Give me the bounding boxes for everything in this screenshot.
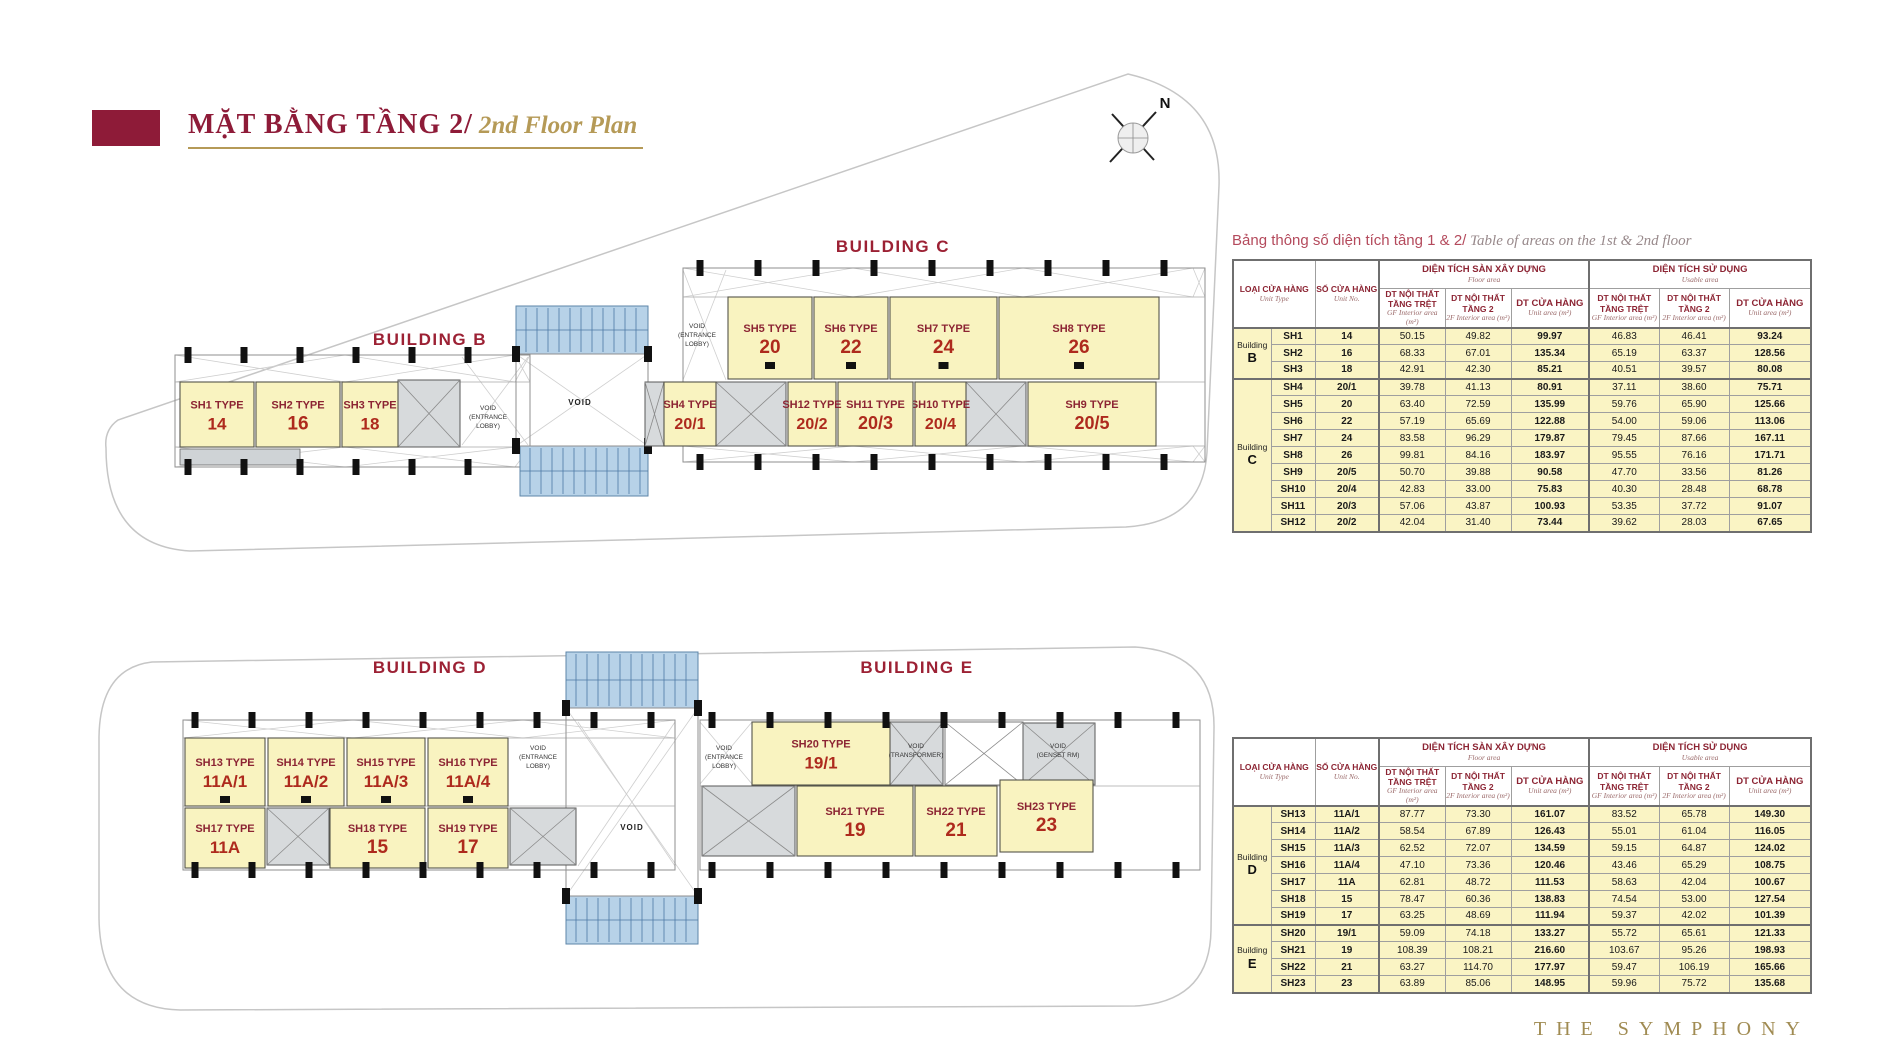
area-table-title-vi: Bảng thông số diện tích tầng 1 & 2/ <box>1232 232 1466 249</box>
column-tick <box>1103 454 1110 470</box>
unit-type-label: SH5 TYPE <box>743 323 796 335</box>
door-mark <box>846 362 856 369</box>
column-header: DT NỘI THẤT TẦNG 22F Interior area (m²) <box>1445 289 1511 328</box>
unit-area-cell: 75.83 <box>1511 481 1589 498</box>
unit-no-cell: 20/3 <box>1315 498 1379 515</box>
area-table-buildings-b-c: LOẠI CỬA HÀNGUnit TypeSỐ CỬA HÀNGUnit No… <box>1232 259 1812 533</box>
unit-usable-area-cell: 128.56 <box>1729 345 1811 362</box>
page-title-en: 2nd Floor Plan <box>479 112 637 139</box>
column-header: SỐ CỬA HÀNGUnit No. <box>1315 260 1379 328</box>
void-entrance-lobby-label: VOID <box>480 405 496 412</box>
unit-type-label: SH12 TYPE <box>782 399 841 411</box>
f2-usable-cell: 76.16 <box>1659 447 1729 464</box>
table-row: SH232363.8985.06148.9559.9675.72135.68 <box>1233 976 1811 993</box>
gf-usable-cell: 43.46 <box>1589 857 1659 874</box>
gf-interior-cell: 58.54 <box>1379 823 1445 840</box>
column-tick <box>987 454 994 470</box>
gf-usable-cell: 79.45 <box>1589 430 1659 447</box>
column-tick <box>825 862 832 878</box>
unit-type-label: SH7 TYPE <box>917 323 970 335</box>
column-tick <box>534 862 541 878</box>
column-tick <box>420 712 427 728</box>
floor-plan-page: SH1 TYPE14SH2 TYPE16SH3 TYPE18SH4 TYPE20… <box>0 0 1894 1063</box>
unit-no-cell: 20/5 <box>1315 464 1379 481</box>
unit-area-cell: 183.97 <box>1511 447 1589 464</box>
void-entrance-lobby-label: LOBBY) <box>526 763 550 770</box>
f2-interior-cell: 48.69 <box>1445 908 1511 925</box>
f2-interior-cell: 72.07 <box>1445 840 1511 857</box>
column-post <box>644 346 652 362</box>
unit-area-cell: 148.95 <box>1511 976 1589 993</box>
unit-no-label: 21 <box>945 820 967 841</box>
column-tick <box>1045 260 1052 276</box>
unit-area-cell: 122.88 <box>1511 413 1589 430</box>
unit-area-cell: 133.27 <box>1511 925 1589 942</box>
void-entrance-lobby-label: VOID <box>689 323 705 330</box>
column-tick <box>534 712 541 728</box>
column-header: DT NỘI THẤT TẦNG TRỆTGF Interior area (m… <box>1589 767 1659 806</box>
unit-no-cell: 21 <box>1315 959 1379 976</box>
building-group-cell: BuildingC <box>1233 379 1271 532</box>
unit-no-cell: 24 <box>1315 430 1379 447</box>
unit-type-label: SH21 TYPE <box>825 806 884 818</box>
column-tick <box>1161 260 1168 276</box>
f2-interior-cell: 85.06 <box>1445 976 1511 993</box>
column-header: DT NỘI THẤT TẦNG 22F Interior area (m²) <box>1659 289 1729 328</box>
table-row: SH82699.8184.16183.9795.5576.16171.71 <box>1233 447 1811 464</box>
gf-usable-cell: 40.30 <box>1589 481 1659 498</box>
unit-usable-area-cell: 125.66 <box>1729 396 1811 413</box>
unit-area-cell: 135.34 <box>1511 345 1589 362</box>
unit-no-cell: 11A/2 <box>1315 823 1379 840</box>
unit-usable-area-cell: 80.08 <box>1729 362 1811 379</box>
f2-usable-cell: 87.66 <box>1659 430 1729 447</box>
unit-no-cell: 20/4 <box>1315 481 1379 498</box>
door-mark <box>381 796 391 803</box>
building-group-cell: BuildingB <box>1233 328 1271 379</box>
column-tick <box>249 712 256 728</box>
unit-id-cell: SH15 <box>1271 840 1315 857</box>
unit-type-label: SH19 TYPE <box>438 823 497 835</box>
gf-usable-cell: 95.55 <box>1589 447 1659 464</box>
column-tick <box>353 459 360 475</box>
unit-no-label: 11A <box>210 838 240 857</box>
column-tick <box>999 862 1006 878</box>
column-tick <box>648 862 655 878</box>
unit-id-cell: SH11 <box>1271 498 1315 515</box>
table-row: SH181578.4760.36138.8374.5453.00127.54 <box>1233 891 1811 908</box>
column-tick <box>192 712 199 728</box>
void-entrance-lobby-label: (ENTRANCE <box>705 754 744 761</box>
column-post <box>512 438 520 454</box>
unit-no-cell: 23 <box>1315 976 1379 993</box>
gf-interior-cell: 63.89 <box>1379 976 1445 993</box>
column-post <box>562 888 570 904</box>
f2-usable-cell: 42.02 <box>1659 908 1729 925</box>
building-label-C: BUILDING C <box>836 237 950 256</box>
void-entrance-lobby-label: (ENTRANCE <box>469 414 508 421</box>
table-row: SH1711A62.8148.72111.5358.6342.04100.67 <box>1233 874 1811 891</box>
gf-usable-cell: 103.67 <box>1589 942 1659 959</box>
gf-usable-cell: 47.70 <box>1589 464 1659 481</box>
column-header: DIỆN TÍCH SỬ DỤNGUsable area <box>1589 738 1811 767</box>
unit-type-label: SH18 TYPE <box>348 823 407 835</box>
door-mark <box>1074 362 1084 369</box>
unit-usable-area-cell: 113.06 <box>1729 413 1811 430</box>
column-tick <box>1045 454 1052 470</box>
column-post <box>562 700 570 716</box>
unit-area-cell: 90.58 <box>1511 464 1589 481</box>
f2-interior-cell: 42.30 <box>1445 362 1511 379</box>
unit-no-label: 20/3 <box>858 413 893 433</box>
unit-type-label: SH15 TYPE <box>356 757 415 769</box>
unit-no-cell: 19/1 <box>1315 925 1379 942</box>
unit-room-SH12 <box>788 382 836 446</box>
column-header: DIỆN TÍCH SÀN XÂY DỰNGFloor area <box>1379 738 1589 767</box>
column-tick <box>883 862 890 878</box>
column-header: DT NỘI THẤT TẦNG 22F Interior area (m²) <box>1659 767 1729 806</box>
page-title-vi: MẶT BẰNG TẦNG 2/ <box>188 109 473 140</box>
unit-no-label: 22 <box>840 337 861 358</box>
f2-interior-cell: 43.87 <box>1445 498 1511 515</box>
unit-area-cell: 138.83 <box>1511 891 1589 908</box>
unit-usable-area-cell: 165.66 <box>1729 959 1811 976</box>
door-mark <box>765 362 775 369</box>
f2-usable-cell: 28.03 <box>1659 515 1729 532</box>
unit-type-label: SH9 TYPE <box>1065 399 1118 411</box>
f2-interior-cell: 73.30 <box>1445 806 1511 823</box>
column-header: LOẠI CỬA HÀNGUnit Type <box>1233 260 1315 328</box>
gf-interior-cell: 78.47 <box>1379 891 1445 908</box>
column-tick <box>813 454 820 470</box>
void-label: VOID <box>568 398 592 407</box>
gf-usable-cell: 46.83 <box>1589 328 1659 345</box>
column-tick <box>871 260 878 276</box>
unit-type-label: SH4 TYPE <box>663 399 716 411</box>
unit-no-label: 20/5 <box>1074 413 1109 433</box>
unit-type-label: SH6 TYPE <box>824 323 877 335</box>
column-tick <box>697 260 704 276</box>
unit-no-label: 19 <box>844 820 865 841</box>
f2-usable-cell: 39.57 <box>1659 362 1729 379</box>
gf-usable-cell: 59.37 <box>1589 908 1659 925</box>
gf-interior-cell: 62.52 <box>1379 840 1445 857</box>
unit-usable-area-cell: 75.71 <box>1729 379 1811 396</box>
column-tick <box>465 459 472 475</box>
building-label-B: BUILDING B <box>373 330 487 349</box>
f2-interior-cell: 74.18 <box>1445 925 1511 942</box>
brand-square <box>92 110 160 146</box>
unit-id-cell: SH14 <box>1271 823 1315 840</box>
column-tick <box>709 862 716 878</box>
f2-usable-cell: 75.72 <box>1659 976 1729 993</box>
unit-no-cell: 11A/4 <box>1315 857 1379 874</box>
f2-interior-cell: 39.88 <box>1445 464 1511 481</box>
f2-usable-cell: 64.87 <box>1659 840 1729 857</box>
column-tick <box>755 260 762 276</box>
unit-usable-area-cell: 121.33 <box>1729 925 1811 942</box>
unit-id-cell: SH3 <box>1271 362 1315 379</box>
unit-no-cell: 19 <box>1315 942 1379 959</box>
column-tick <box>297 459 304 475</box>
f2-usable-cell: 53.00 <box>1659 891 1729 908</box>
gf-usable-cell: 55.01 <box>1589 823 1659 840</box>
gf-interior-cell: 42.83 <box>1379 481 1445 498</box>
unit-type-label: SH16 TYPE <box>438 757 497 769</box>
unit-type-label: SH10 TYPE <box>911 399 970 411</box>
f2-usable-cell: 59.06 <box>1659 413 1729 430</box>
column-tick <box>941 712 948 728</box>
column-tick <box>306 712 313 728</box>
column-tick <box>465 347 472 363</box>
project-brand-logo: THE SYMPHONY <box>1534 1018 1810 1041</box>
unit-no-cell: 26 <box>1315 447 1379 464</box>
f2-interior-cell: 41.13 <box>1445 379 1511 396</box>
column-header: LOẠI CỬA HÀNGUnit Type <box>1233 738 1315 806</box>
unit-no-cell: 16 <box>1315 345 1379 362</box>
unit-no-label: 20/1 <box>674 416 705 433</box>
gf-interior-cell: 42.91 <box>1379 362 1445 379</box>
area-table: LOẠI CỬA HÀNGUnit TypeSỐ CỬA HÀNGUnit No… <box>1232 737 1812 994</box>
unit-id-cell: SH17 <box>1271 874 1315 891</box>
unit-type-label: SH22 TYPE <box>926 806 985 818</box>
column-tick <box>648 712 655 728</box>
gf-usable-cell: 59.47 <box>1589 959 1659 976</box>
f2-usable-cell: 65.61 <box>1659 925 1729 942</box>
unit-usable-area-cell: 127.54 <box>1729 891 1811 908</box>
table-row: SH1611A/447.1073.36120.4643.4665.29108.7… <box>1233 857 1811 874</box>
column-tick <box>420 862 427 878</box>
area-table-title-en: Table of areas on the 1st & 2nd floor <box>1466 233 1691 249</box>
unit-no-cell: 11A/1 <box>1315 806 1379 823</box>
column-tick <box>767 712 774 728</box>
f2-interior-cell: 72.59 <box>1445 396 1511 413</box>
unit-type-label: SH11 TYPE <box>846 399 905 411</box>
f2-usable-cell: 61.04 <box>1659 823 1729 840</box>
column-tick <box>1161 454 1168 470</box>
table-row: BuildingCSH420/139.7841.1380.9137.1138.6… <box>1233 379 1811 396</box>
f2-usable-cell: 28.48 <box>1659 481 1729 498</box>
table-row: SH2119108.39108.21216.60103.6795.26198.9… <box>1233 942 1811 959</box>
void-genset-label: (GENSET RM) <box>1037 752 1080 759</box>
column-tick <box>241 347 248 363</box>
gf-usable-cell: 58.63 <box>1589 874 1659 891</box>
f2-usable-cell: 65.90 <box>1659 396 1729 413</box>
gf-interior-cell: 57.19 <box>1379 413 1445 430</box>
column-tick <box>353 347 360 363</box>
unit-room-SH10 <box>915 382 966 446</box>
void-genset-label: VOID <box>1050 743 1066 750</box>
unit-type-label: SH2 TYPE <box>271 400 324 412</box>
gf-interior-cell: 63.40 <box>1379 396 1445 413</box>
f2-interior-cell: 48.72 <box>1445 874 1511 891</box>
page-title: MẶT BẰNG TẦNG 2/2nd Floor Plan <box>188 104 643 149</box>
gf-interior-cell: 108.39 <box>1379 942 1445 959</box>
column-header: DIỆN TÍCH SÀN XÂY DỰNGFloor area <box>1379 260 1589 289</box>
unit-area-cell: 85.21 <box>1511 362 1589 379</box>
table-row: BuildingBSH11450.1549.8299.9746.8346.419… <box>1233 328 1811 345</box>
unit-type-label: SH14 TYPE <box>276 757 335 769</box>
unit-area-cell: 111.53 <box>1511 874 1589 891</box>
unit-no-label: 16 <box>287 414 308 435</box>
unit-type-label: SH20 TYPE <box>791 739 850 751</box>
gf-usable-cell: 53.35 <box>1589 498 1659 515</box>
table-row: SH52063.4072.59135.9959.7665.90125.66 <box>1233 396 1811 413</box>
column-tick <box>697 454 704 470</box>
unit-usable-area-cell: 149.30 <box>1729 806 1811 823</box>
unit-type-label: SH8 TYPE <box>1052 323 1105 335</box>
gf-interior-cell: 62.81 <box>1379 874 1445 891</box>
unit-no-cell: 20/2 <box>1315 515 1379 532</box>
column-tick <box>1173 862 1180 878</box>
unit-type-label: SH17 TYPE <box>195 823 254 835</box>
unit-no-cell: 18 <box>1315 362 1379 379</box>
unit-id-cell: SH9 <box>1271 464 1315 481</box>
unit-area-cell: 216.60 <box>1511 942 1589 959</box>
column-header: DT NỘI THẤT TẦNG TRỆTGF Interior area (m… <box>1379 767 1445 806</box>
unit-type-label: SH1 TYPE <box>190 400 243 412</box>
unit-no-cell: 14 <box>1315 328 1379 345</box>
f2-usable-cell: 37.72 <box>1659 498 1729 515</box>
f2-usable-cell: 33.56 <box>1659 464 1729 481</box>
unit-area-cell: 100.93 <box>1511 498 1589 515</box>
unit-id-cell: SH10 <box>1271 481 1315 498</box>
table-row: SH1411A/258.5467.89126.4355.0161.04116.0… <box>1233 823 1811 840</box>
f2-interior-cell: 73.36 <box>1445 857 1511 874</box>
unit-area-cell: 135.99 <box>1511 396 1589 413</box>
unit-type-label: SH3 TYPE <box>343 400 396 412</box>
unit-usable-area-cell: 81.26 <box>1729 464 1811 481</box>
column-header: DT CỬA HÀNGUnit area (m²) <box>1729 289 1811 328</box>
f2-usable-cell: 38.60 <box>1659 379 1729 396</box>
column-post <box>694 888 702 904</box>
door-mark <box>220 796 230 803</box>
unit-area-cell: 99.97 <box>1511 328 1589 345</box>
column-tick <box>1115 862 1122 878</box>
column-tick <box>825 712 832 728</box>
table-row: SH222163.27114.70177.9759.47106.19165.66 <box>1233 959 1811 976</box>
unit-id-cell: SH5 <box>1271 396 1315 413</box>
unit-area-cell: 80.91 <box>1511 379 1589 396</box>
column-tick <box>709 712 716 728</box>
column-tick <box>241 459 248 475</box>
column-post <box>512 346 520 362</box>
f2-usable-cell: 42.04 <box>1659 874 1729 891</box>
table-row: SH920/550.7039.8890.5847.7033.5681.26 <box>1233 464 1811 481</box>
door-mark <box>939 362 949 369</box>
void-entrance-lobby-label: (ENTRANCE <box>519 754 558 761</box>
table-row: SH21668.3367.01135.3465.1963.37128.56 <box>1233 345 1811 362</box>
void-entrance-lobby-label: VOID <box>530 745 546 752</box>
unit-usable-area-cell: 171.71 <box>1729 447 1811 464</box>
column-tick <box>1115 712 1122 728</box>
gf-interior-cell: 50.70 <box>1379 464 1445 481</box>
f2-usable-cell: 106.19 <box>1659 959 1729 976</box>
column-tick <box>1103 260 1110 276</box>
column-tick <box>755 454 762 470</box>
column-tick <box>883 712 890 728</box>
column-header: DT NỘI THẤT TẦNG 22F Interior area (m²) <box>1445 767 1511 806</box>
column-tick <box>1057 862 1064 878</box>
unit-no-label: 20/4 <box>925 416 956 433</box>
column-tick <box>192 862 199 878</box>
column-header: DT NỘI THẤT TẦNG TRỆTGF Interior area (m… <box>1589 289 1659 328</box>
gf-interior-cell: 42.04 <box>1379 515 1445 532</box>
unit-usable-area-cell: 124.02 <box>1729 840 1811 857</box>
column-tick <box>477 862 484 878</box>
unit-no-label: 11A/2 <box>284 772 328 791</box>
column-header: DT CỬA HÀNGUnit area (m²) <box>1729 767 1811 806</box>
void-entrance-lobby-label: LOBBY) <box>685 341 709 348</box>
column-tick <box>999 712 1006 728</box>
column-tick <box>1057 712 1064 728</box>
unit-no-cell: 17 <box>1315 908 1379 925</box>
void-label: VOID <box>620 823 644 832</box>
column-header: DT CỬA HÀNGUnit area (m²) <box>1511 289 1589 328</box>
column-tick <box>409 347 416 363</box>
f2-usable-cell: 63.37 <box>1659 345 1729 362</box>
column-tick <box>591 712 598 728</box>
unit-id-cell: SH23 <box>1271 976 1315 993</box>
table-row: BuildingESH2019/159.0974.18133.2755.7265… <box>1233 925 1811 942</box>
gf-usable-cell: 74.54 <box>1589 891 1659 908</box>
column-header: DT NỘI THẤT TẦNG TRỆTGF Interior area (m… <box>1379 289 1445 328</box>
f2-interior-cell: 31.40 <box>1445 515 1511 532</box>
gf-usable-cell: 65.19 <box>1589 345 1659 362</box>
stair-annex <box>180 449 300 465</box>
f2-usable-cell: 46.41 <box>1659 328 1729 345</box>
f2-interior-cell: 65.69 <box>1445 413 1511 430</box>
building-label-D: BUILDING D <box>373 658 487 677</box>
area-table: LOẠI CỬA HÀNGUnit TypeSỐ CỬA HÀNGUnit No… <box>1232 259 1812 533</box>
void-entrance-lobby-label: LOBBY) <box>712 763 736 770</box>
unit-usable-area-cell: 93.24 <box>1729 328 1811 345</box>
unit-usable-area-cell: 100.67 <box>1729 874 1811 891</box>
f2-interior-cell: 49.82 <box>1445 328 1511 345</box>
void-entrance-lobby-label: LOBBY) <box>476 423 500 430</box>
gf-usable-cell: 40.51 <box>1589 362 1659 379</box>
column-tick <box>929 260 936 276</box>
f2-usable-cell: 95.26 <box>1659 942 1729 959</box>
column-tick <box>297 347 304 363</box>
gf-interior-cell: 68.33 <box>1379 345 1445 362</box>
f2-interior-cell: 96.29 <box>1445 430 1511 447</box>
area-table-title: Bảng thông số diện tích tầng 1 & 2/ Tabl… <box>1232 232 1812 250</box>
unit-no-cell: 11A/3 <box>1315 840 1379 857</box>
building-group-cell: BuildingE <box>1233 925 1271 993</box>
unit-no-label: 24 <box>933 337 955 358</box>
void-transformer-label: VOID <box>908 743 924 750</box>
table-row: SH1020/442.8333.0075.8340.3028.4868.78 <box>1233 481 1811 498</box>
column-tick <box>363 712 370 728</box>
gf-usable-cell: 59.15 <box>1589 840 1659 857</box>
column-header: DIỆN TÍCH SỬ DỤNGUsable area <box>1589 260 1811 289</box>
column-tick <box>363 862 370 878</box>
unit-usable-area-cell: 167.11 <box>1729 430 1811 447</box>
unit-no-label: 11A/3 <box>364 772 408 791</box>
gf-usable-cell: 54.00 <box>1589 413 1659 430</box>
column-tick <box>306 862 313 878</box>
table-row: SH1220/242.0431.4073.4439.6228.0367.65 <box>1233 515 1811 532</box>
unit-no-cell: 20 <box>1315 396 1379 413</box>
column-tick <box>987 260 994 276</box>
table-row: SH72483.5896.29179.8779.4587.66167.11 <box>1233 430 1811 447</box>
unit-area-cell: 177.97 <box>1511 959 1589 976</box>
unit-no-label: 11A/1 <box>203 772 247 791</box>
column-header: DT CỬA HÀNGUnit area (m²) <box>1511 767 1589 806</box>
unit-usable-area-cell: 101.39 <box>1729 908 1811 925</box>
unit-id-cell: SH1 <box>1271 328 1315 345</box>
